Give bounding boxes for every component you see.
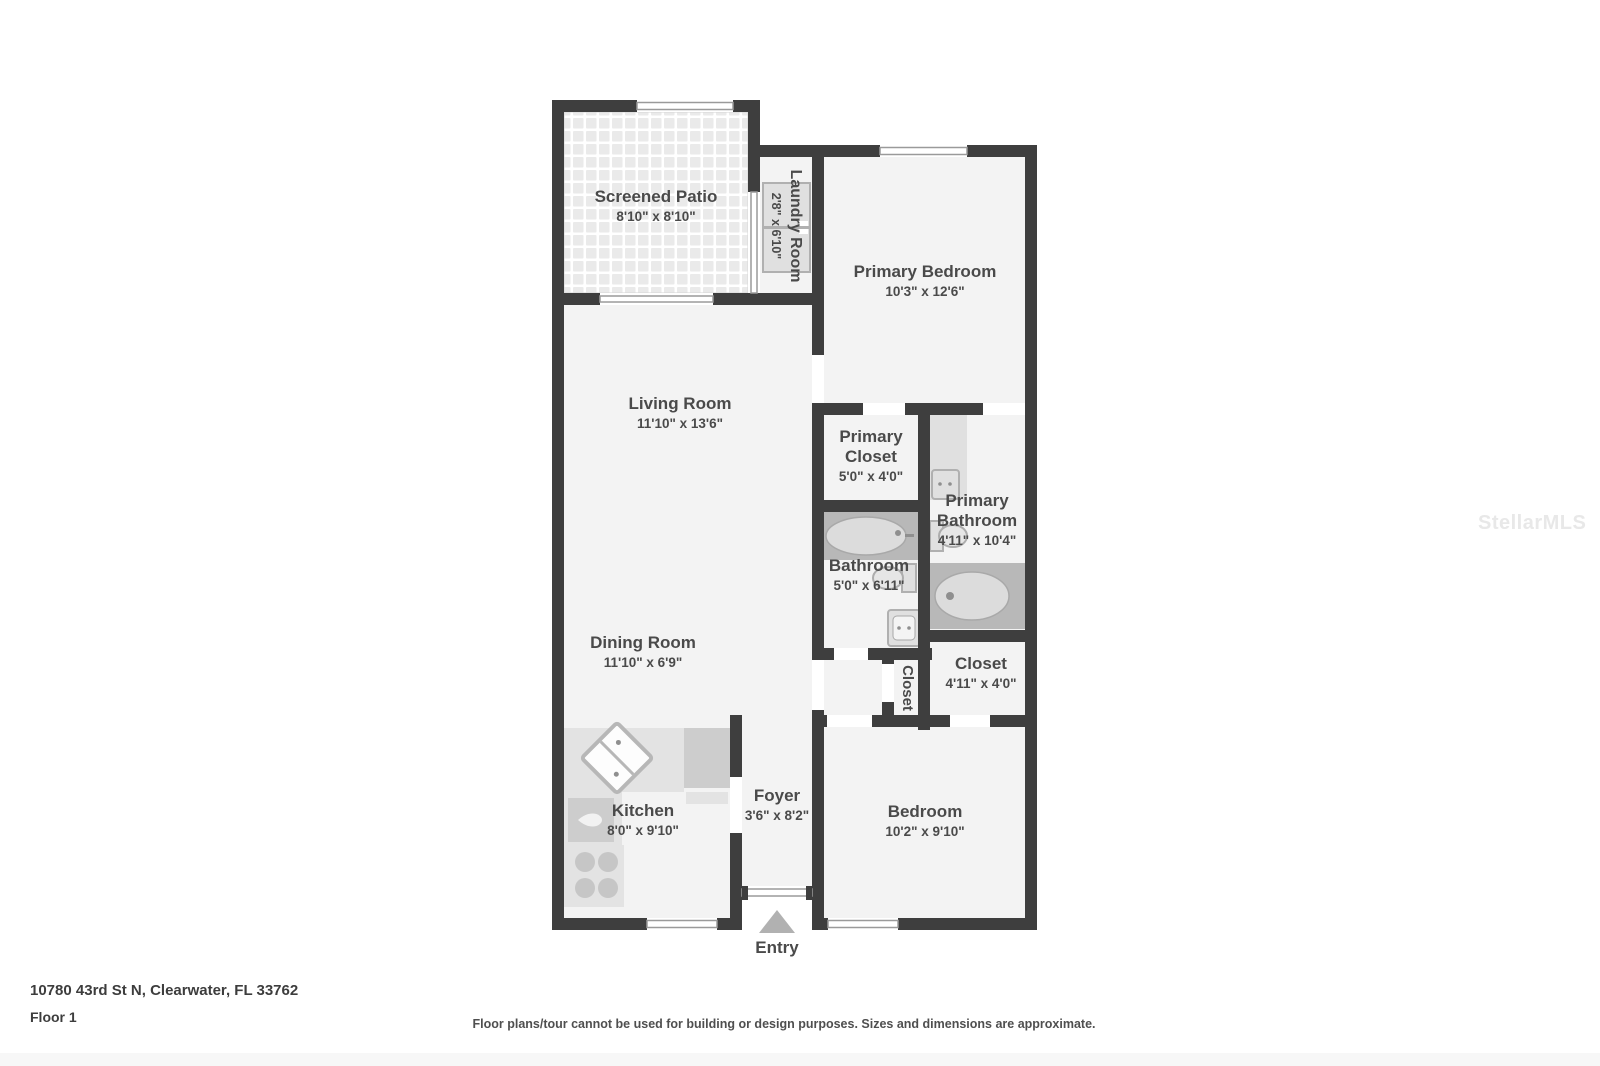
window-icon: [647, 918, 717, 930]
room-name: Living Room: [629, 394, 732, 414]
room-name: Primary Closet: [825, 427, 917, 467]
room-label-bedroom: Bedroom 10'2" x 9'10": [885, 802, 964, 840]
room-name: Laundry Room: [785, 170, 804, 283]
room-dims: 8'0" x 9'10": [607, 823, 679, 839]
room-dims: 10'2" x 9'10": [885, 824, 964, 840]
room-name: Bathroom: [829, 556, 909, 576]
room-label-bedroom-closet: Closet 4'11" x 4'0": [945, 654, 1016, 692]
sliding-door-icon: [600, 293, 713, 305]
room-label-living-room: Living Room 11'10" x 13'6": [629, 394, 732, 432]
room-name: Primary Bathroom: [921, 491, 1033, 531]
room-label-primary-bedroom: Primary Bedroom 10'3" x 12'6": [854, 262, 997, 300]
room-name: Dining Room: [590, 633, 696, 653]
room-label-foyer: Foyer 3'6" x 8'2": [745, 786, 809, 824]
room-label-primary-bathroom: Primary Bathroom 4'11" x 10'4": [921, 491, 1033, 549]
room-label-dining-room: Dining Room 11'10" x 6'9": [590, 633, 696, 671]
window-icon: [828, 918, 898, 930]
room-dims: 11'10" x 6'9": [590, 655, 696, 671]
floor-plan-canvas: [0, 0, 1600, 1066]
property-address: 10780 43rd St N, Clearwater, FL 33762: [30, 982, 298, 999]
room-label-screened-patio: Screened Patio 8'10" x 8'10": [595, 187, 718, 225]
room-label-laundry-room: Laundry Room 2'8" x 6'10": [768, 170, 804, 283]
stove-icon: [564, 845, 624, 907]
bathtub-icon: [824, 512, 918, 560]
window-icon: [637, 100, 733, 112]
room-label-kitchen: Kitchen 8'0" x 9'10": [607, 801, 679, 839]
room-label-primary-closet: Primary Closet 5'0" x 4'0": [825, 427, 917, 485]
room-dims: 11'10" x 13'6": [629, 416, 732, 432]
room-dims: 4'11" x 10'4": [921, 533, 1033, 549]
room-name: Screened Patio: [595, 187, 718, 207]
room-name: Closet: [945, 654, 1016, 674]
window-icon: [880, 145, 967, 157]
entry-label: Entry: [755, 938, 798, 958]
room-dims: 10'3" x 12'6": [854, 284, 997, 300]
bottom-divider: [0, 1053, 1600, 1066]
room-name: Closet: [898, 665, 916, 711]
bathtub-icon: [930, 563, 1025, 629]
fridge-icon: [684, 728, 730, 788]
entry-door-icon: [742, 886, 812, 900]
room-dims: 5'0" x 6'11": [829, 578, 909, 594]
stellar-mls-watermark: StellarMLS: [1478, 512, 1586, 535]
patio-screen: [748, 192, 760, 293]
room-dims: 2'8" x 6'10": [768, 170, 783, 283]
room-dims: 8'10" x 8'10": [595, 209, 718, 225]
room-dims: 4'11" x 4'0": [945, 676, 1016, 692]
room-label-hall-closet: Closet: [898, 665, 916, 711]
disclaimer-text: Floor plans/tour cannot be used for buil…: [472, 1017, 1095, 1031]
room-dims: 3'6" x 8'2": [745, 808, 809, 824]
room-name: Foyer: [745, 786, 809, 806]
floor-number: Floor 1: [30, 1009, 77, 1025]
room-name: Primary Bedroom: [854, 262, 997, 282]
room-name: Kitchen: [607, 801, 679, 821]
room-dims: 5'0" x 4'0": [825, 469, 917, 485]
room-label-bathroom: Bathroom 5'0" x 6'11": [829, 556, 909, 594]
sink-icon: [888, 610, 920, 646]
floor-plan-page: Screened Patio 8'10" x 8'10" Laundry Roo…: [0, 0, 1600, 1066]
room-name: Bedroom: [885, 802, 964, 822]
